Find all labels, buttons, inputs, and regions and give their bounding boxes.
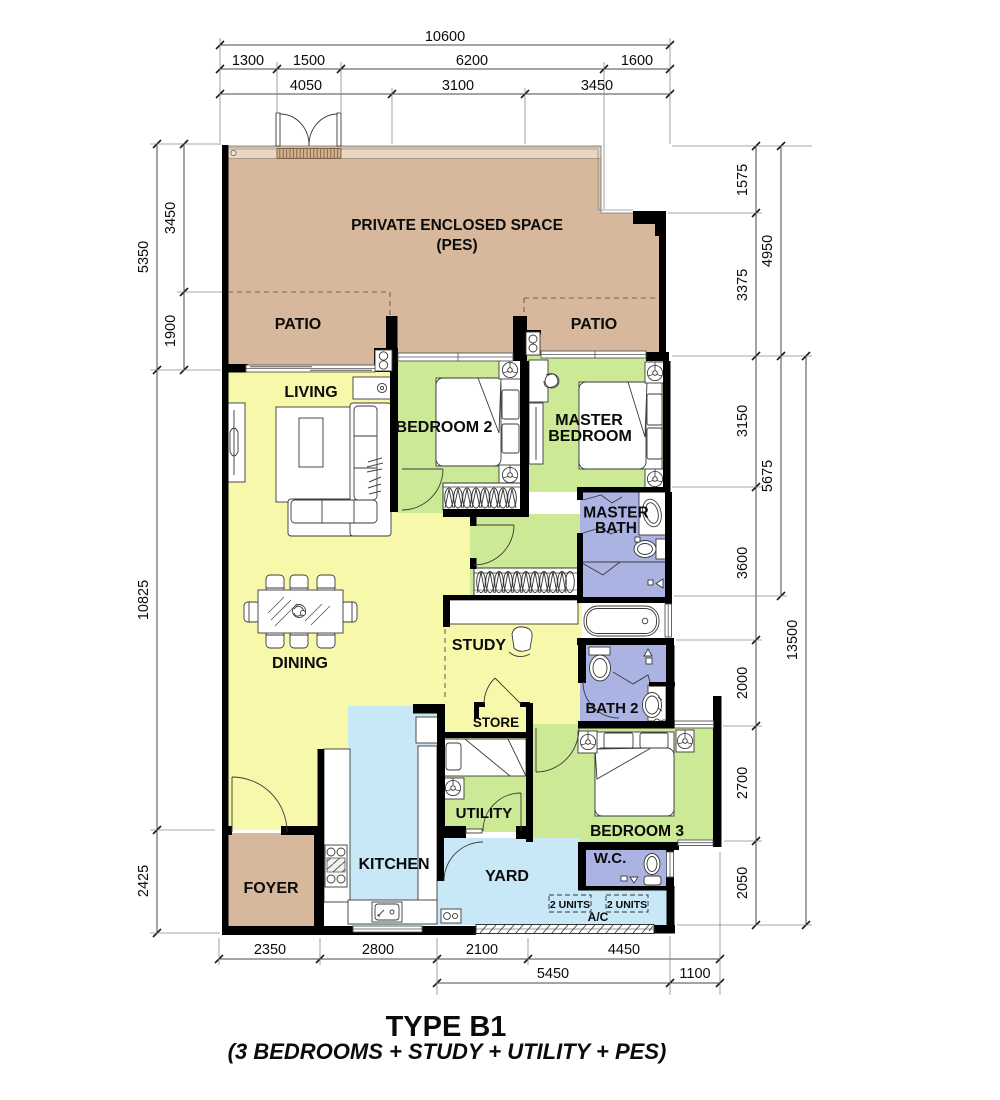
- svg-text:5675: 5675: [760, 460, 776, 492]
- svg-text:BEDROOM: BEDROOM: [548, 428, 632, 445]
- svg-text:2000: 2000: [735, 667, 751, 699]
- svg-text:2425: 2425: [136, 865, 152, 897]
- svg-text:4450: 4450: [608, 942, 640, 958]
- svg-text:STORE: STORE: [473, 715, 519, 730]
- svg-text:2100: 2100: [466, 942, 498, 958]
- svg-text:1575: 1575: [735, 164, 751, 196]
- svg-text:10825: 10825: [136, 580, 152, 620]
- svg-text:UTILITY: UTILITY: [456, 805, 513, 822]
- svg-text:KITCHEN: KITCHEN: [358, 856, 429, 873]
- svg-text:6200: 6200: [456, 53, 488, 69]
- svg-text:2800: 2800: [362, 942, 394, 958]
- svg-text:FOYER: FOYER: [243, 880, 299, 897]
- svg-text:1600: 1600: [621, 53, 653, 69]
- svg-text:1100: 1100: [679, 966, 710, 982]
- svg-text:1900: 1900: [163, 315, 179, 347]
- svg-text:3375: 3375: [735, 269, 751, 301]
- svg-text:3450: 3450: [581, 78, 613, 94]
- svg-text:3450: 3450: [163, 202, 179, 234]
- svg-text:(3 BEDROOMS + STUDY + UTILITY: (3 BEDROOMS + STUDY + UTILITY + PES): [228, 1039, 667, 1064]
- svg-text:STUDY: STUDY: [452, 637, 507, 654]
- svg-text:MASTER: MASTER: [583, 505, 648, 522]
- svg-text:BATH: BATH: [595, 520, 637, 537]
- svg-text:DINING: DINING: [272, 655, 328, 672]
- svg-text:3150: 3150: [735, 405, 751, 437]
- svg-text:5350: 5350: [136, 241, 152, 273]
- svg-text:3100: 3100: [442, 78, 474, 94]
- svg-text:13500: 13500: [785, 620, 801, 660]
- svg-text:(PES): (PES): [436, 237, 477, 254]
- svg-text:YARD: YARD: [485, 868, 529, 885]
- svg-text:BEDROOM 3: BEDROOM 3: [590, 823, 684, 840]
- svg-text:LIVING: LIVING: [284, 384, 337, 401]
- svg-text:BEDROOM 2: BEDROOM 2: [396, 419, 493, 436]
- svg-text:5450: 5450: [537, 966, 569, 982]
- svg-text:2 UNITS: 2 UNITS: [550, 899, 590, 911]
- svg-text:4950: 4950: [760, 235, 776, 267]
- svg-text:3600: 3600: [735, 547, 751, 579]
- svg-text:2 UNITS: 2 UNITS: [607, 899, 647, 911]
- svg-text:PATIO: PATIO: [571, 316, 618, 333]
- svg-text:2050: 2050: [735, 867, 751, 899]
- svg-text:4050: 4050: [290, 78, 322, 94]
- svg-text:PATIO: PATIO: [275, 316, 322, 333]
- svg-text:1300: 1300: [232, 53, 264, 69]
- svg-text:2700: 2700: [735, 767, 751, 799]
- svg-text:MASTER: MASTER: [555, 412, 623, 429]
- svg-text:W.C.: W.C.: [594, 850, 627, 867]
- svg-text:2350: 2350: [254, 942, 286, 958]
- svg-text:10600: 10600: [425, 29, 465, 45]
- svg-text:BATH 2: BATH 2: [585, 700, 638, 717]
- svg-text:PRIVATE ENCLOSED SPACE: PRIVATE ENCLOSED SPACE: [351, 217, 563, 234]
- svg-text:1500: 1500: [293, 53, 325, 69]
